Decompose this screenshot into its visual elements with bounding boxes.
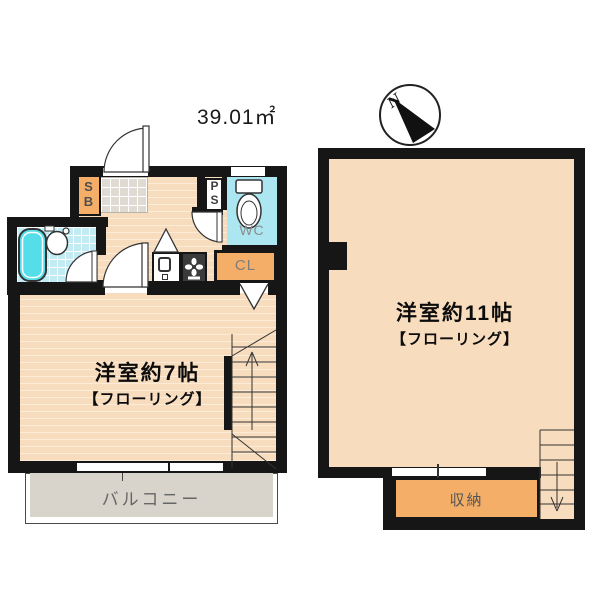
- balcony-window-tick: [122, 473, 123, 481]
- compass-needle: [393, 98, 435, 143]
- stairs2-floor: [540, 467, 574, 519]
- bath-wall-top: [7, 217, 108, 227]
- wall-under-kitchen: [147, 281, 240, 295]
- room1-name: 洋室約7帖 【フローリング】: [55, 357, 240, 409]
- compass-n-letter: N: [384, 90, 406, 112]
- storage-sliding-opening: [392, 467, 486, 477]
- balcony-window-divider: [168, 461, 170, 473]
- wall-pillar-bump: [329, 242, 347, 270]
- entry-tile-floor: [100, 177, 148, 213]
- kitchen-stove-unit: [181, 252, 207, 283]
- floorplan-canvas: 39.01㎡ SB PS WC CL 洋室約7帖 【フローリング】 バルコニー: [0, 0, 600, 600]
- room2-name-line1: 洋室約11帖: [365, 297, 545, 327]
- wc-label: WC: [227, 222, 277, 238]
- wall-bottom-2f: [383, 519, 585, 530]
- entrance-opening: [103, 167, 148, 177]
- wc-window: [231, 166, 265, 177]
- wall-right-1f: [276, 166, 287, 473]
- balcony-window: [77, 461, 223, 473]
- wall-left-lower-1f: [8, 280, 20, 473]
- pipe-space-label: PS: [208, 180, 221, 208]
- room2-name-line2: 【フローリング】: [365, 328, 545, 349]
- bathroom-floor: [17, 227, 96, 282]
- shoebox-label: SB: [81, 180, 96, 210]
- wall-under-bath: [7, 280, 105, 295]
- closet-label: CL: [214, 257, 277, 274]
- balcony-label: バルコニー: [30, 485, 273, 510]
- total-area-label: 39.01㎡: [197, 101, 317, 131]
- wall-right-of-closet-door: [268, 281, 287, 295]
- wall-left-2f: [318, 148, 329, 478]
- compass-north-indicator: N: [380, 85, 440, 145]
- storage-opening-tick: [437, 464, 439, 478]
- kitchen-sink-handle: [162, 274, 168, 280]
- wall-top-2f: [318, 148, 585, 159]
- wall-right-2f: [574, 148, 585, 530]
- bath-wall-right: [96, 227, 106, 255]
- room1-name-line2: 【フローリング】: [55, 388, 240, 409]
- room1-name-line1: 洋室約7帖: [55, 357, 240, 387]
- storage-label: 収納: [393, 489, 540, 510]
- room2-name: 洋室約11帖 【フローリング】: [365, 297, 545, 349]
- kitchen-sink-basin: [158, 257, 171, 272]
